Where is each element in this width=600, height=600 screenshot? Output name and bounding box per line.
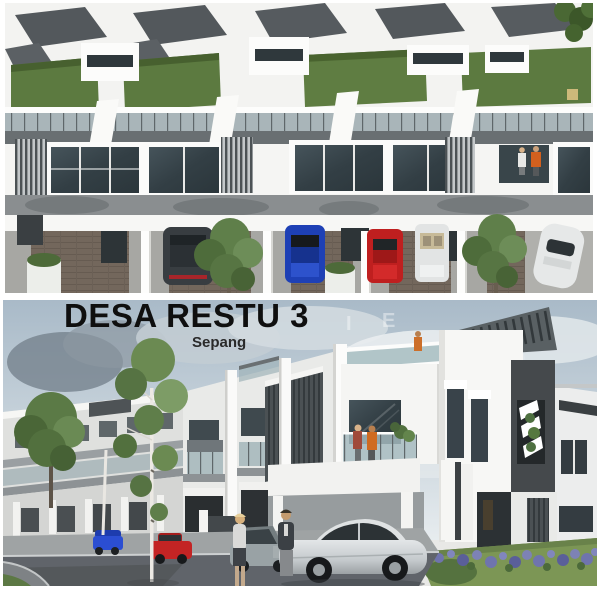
balcony-volume bbox=[341, 364, 445, 464]
car-red bbox=[367, 229, 403, 283]
car-blue bbox=[285, 225, 325, 283]
window-2 bbox=[143, 142, 225, 196]
window-hood-1 bbox=[444, 380, 467, 389]
watermark-letter: E bbox=[382, 310, 395, 332]
accent-panel bbox=[511, 360, 555, 492]
window-3 bbox=[289, 140, 389, 194]
window-5 bbox=[553, 142, 593, 196]
slat-screen bbox=[527, 498, 549, 542]
car-white-convertible bbox=[415, 224, 449, 282]
roof-figure bbox=[414, 331, 422, 351]
aerial-render bbox=[5, 3, 593, 293]
slot-window-1 bbox=[447, 389, 464, 458]
slot-window-2 bbox=[471, 399, 488, 462]
neighbor-building bbox=[555, 384, 597, 542]
fence-panel bbox=[17, 215, 43, 245]
window-1 bbox=[45, 142, 145, 196]
louver-screen-2 bbox=[221, 137, 253, 193]
street-render-panel: I E S Y A bbox=[3, 300, 597, 586]
aerial-render-panel bbox=[5, 3, 593, 293]
garden-furniture bbox=[567, 89, 578, 100]
watermark-letter: I bbox=[346, 313, 352, 335]
louver-screen-1 bbox=[15, 139, 47, 195]
louver-screen-3 bbox=[445, 137, 475, 193]
window-hood-2 bbox=[468, 390, 491, 399]
window-row bbox=[5, 137, 593, 196]
street-render: I E S Y A bbox=[3, 300, 597, 586]
brochure-collage: I E S Y A bbox=[0, 0, 600, 600]
front-lawn bbox=[417, 538, 597, 586]
